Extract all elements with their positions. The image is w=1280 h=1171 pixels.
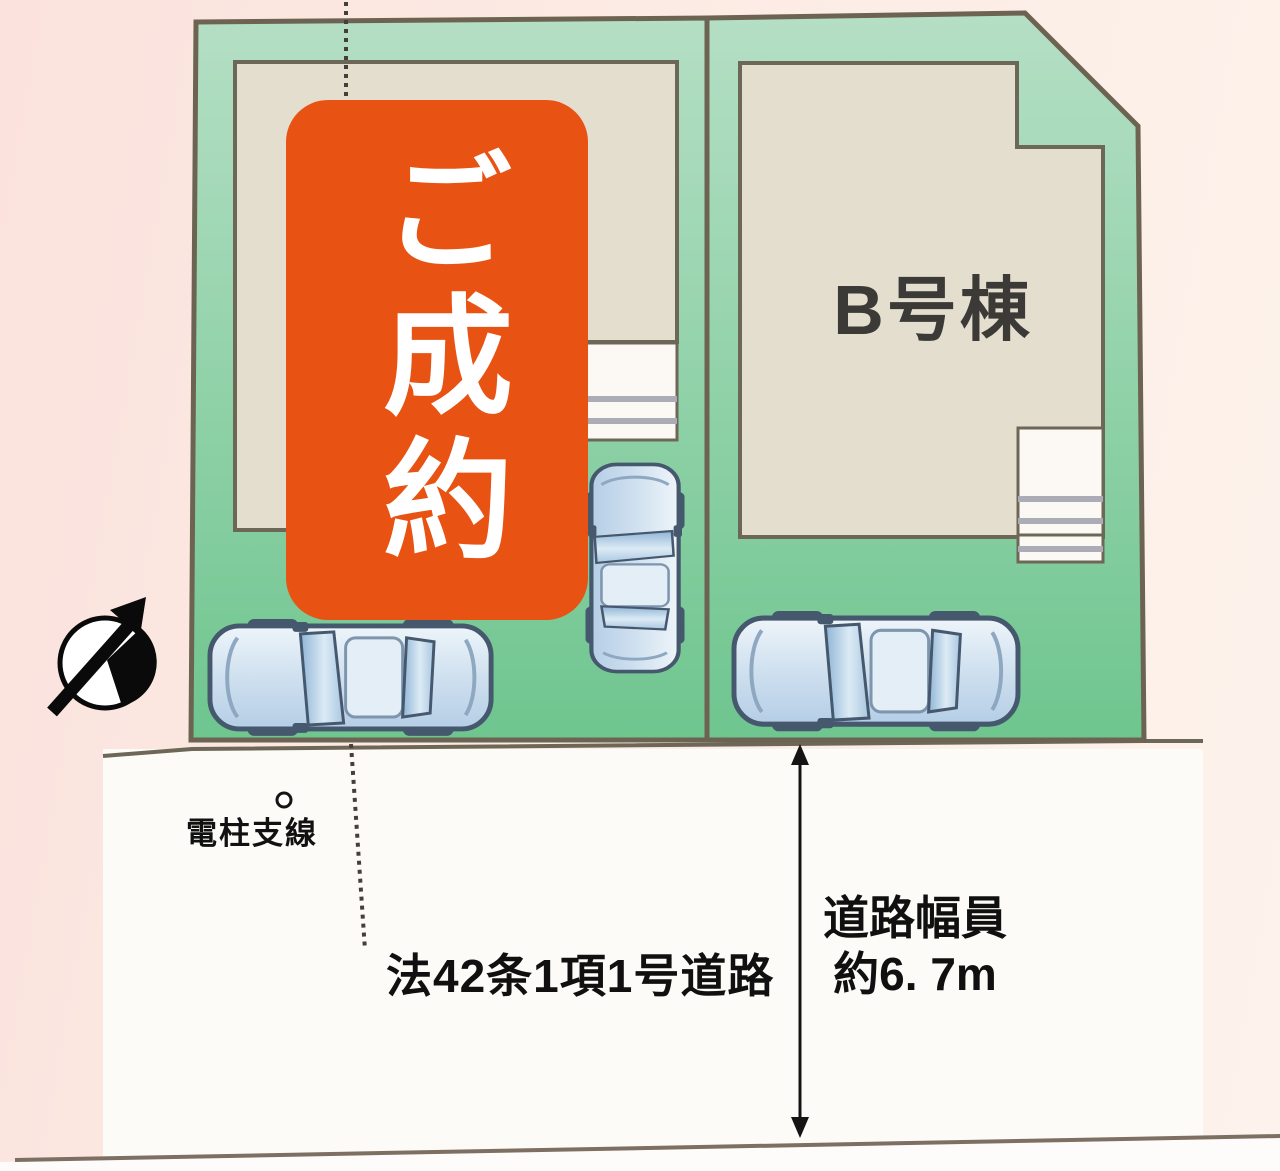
sold-badge: ご成約 [286,100,588,620]
road-designation-label: 法42条1項1号道路 [386,940,774,1006]
site-plan: ご成約 B号棟 電柱支線 法42条1項1号道路 道路幅員 約6. 7m [0,0,1280,1171]
sold-badge-label: ご成約 [372,144,502,576]
building-b-label: B号棟 [733,254,1133,355]
labels-layer: ご成約 B号棟 電柱支線 法42条1項1号道路 道路幅員 約6. 7m [0,0,1280,1171]
road-width-value: 約6. 7m [790,946,1040,1002]
utility-pole-label: 電柱支線 [186,808,318,853]
road-width-title: 道路幅員 [790,890,1040,946]
road-width-label: 道路幅員 約6. 7m [790,890,1040,1002]
